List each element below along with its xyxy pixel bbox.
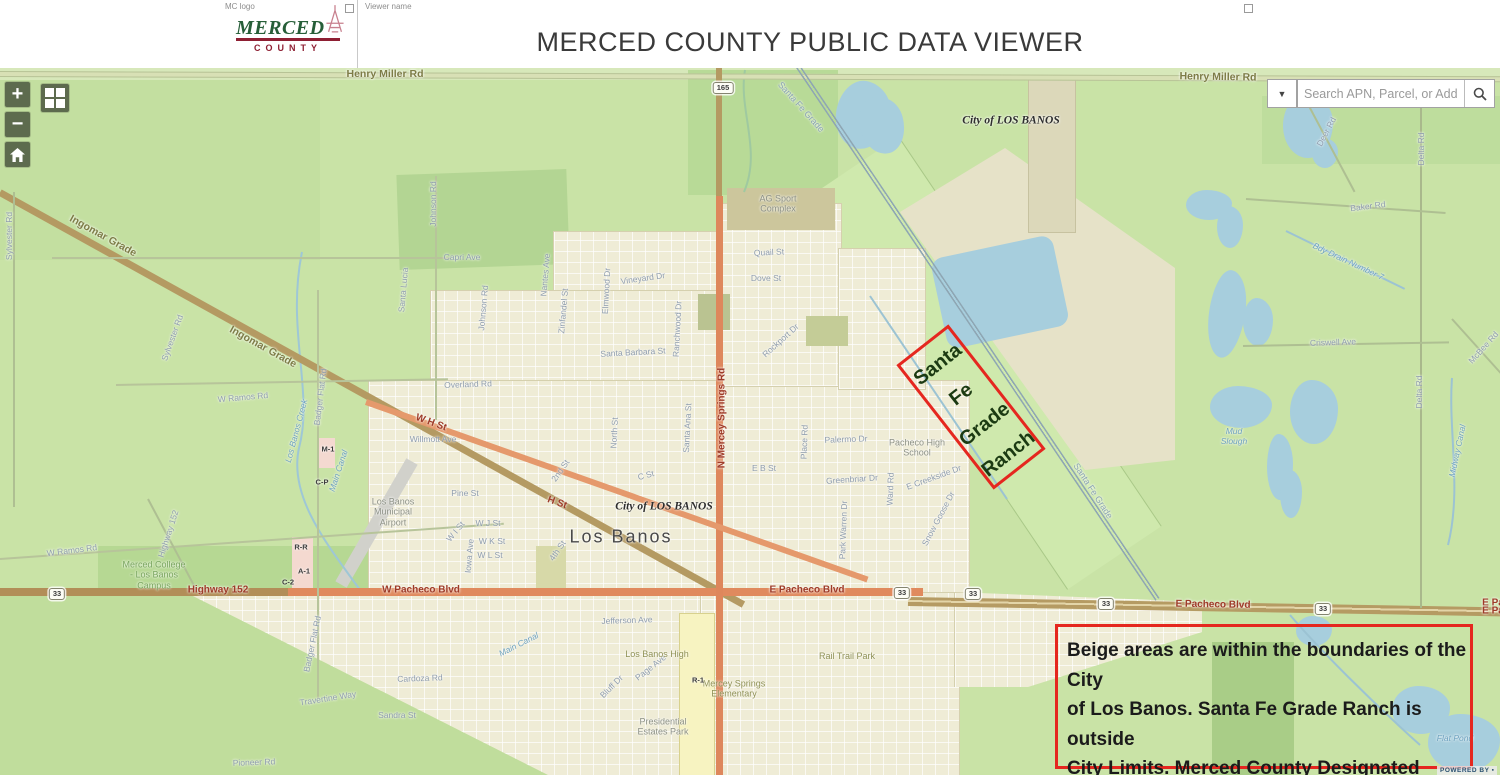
road-capri-ave	[52, 257, 450, 259]
attribution: POWERED BY ▪	[1437, 766, 1497, 775]
zoom-in-button[interactable]: +	[5, 82, 30, 107]
road-johnson-rd	[435, 176, 437, 420]
home-icon	[10, 148, 25, 162]
zoom-out-button[interactable]: −	[5, 112, 30, 137]
merced-county-logo: MERCED COUNTY	[236, 18, 340, 53]
search-input[interactable]	[1298, 87, 1464, 101]
search-icon	[1473, 87, 1487, 101]
info-box-line: of Los Banos. Santa Fe Grade Ranch is ou…	[1058, 695, 1470, 754]
search-dropdown-button[interactable]: ▼	[1267, 79, 1297, 108]
info-box-line: City Limits. Merced County Designated Zo…	[1058, 754, 1470, 775]
road-mercey-springs	[716, 196, 723, 775]
header-options-icon[interactable]	[1244, 4, 1253, 13]
road-sylvester-rd	[13, 192, 15, 507]
map-canvas[interactable]: Ingomar GradeIngomar GradeHenry Miller R…	[0, 0, 1500, 775]
search-button[interactable]	[1464, 80, 1494, 107]
minus-icon: −	[12, 113, 24, 136]
plus-icon: +	[12, 83, 24, 106]
search-bar	[1297, 79, 1495, 108]
road-mercey-springs-north	[716, 66, 722, 198]
collapse-icon[interactable]	[345, 4, 354, 13]
grid-icon	[45, 88, 54, 97]
zoning-annotation-box: Beige areas are within the boundaries of…	[1055, 624, 1473, 769]
mc-logo-label: MC logo	[225, 2, 255, 11]
header-divider	[357, 0, 358, 68]
info-box-line: Beige areas are within the boundaries of…	[1058, 627, 1470, 695]
logo-text-county: COUNTY	[236, 43, 340, 53]
viewer-name-label: Viewer name	[365, 2, 412, 11]
road-delta-rd	[1420, 102, 1422, 608]
chevron-down-icon: ▼	[1278, 89, 1287, 99]
road-pacheco-blvd	[288, 588, 923, 596]
app-window: Ingomar GradeIngomar GradeHenry Miller R…	[0, 0, 1500, 775]
basemap-gallery-button[interactable]	[41, 84, 69, 112]
home-button[interactable]	[5, 142, 30, 167]
page-title: MERCED COUNTY PUBLIC DATA VIEWER	[536, 27, 1083, 58]
road-badger-flat-rd	[317, 290, 319, 698]
app-header: MC logo MERCED COUNTY Viewer name MERCED…	[0, 0, 1500, 68]
road-highway-152	[0, 588, 300, 596]
